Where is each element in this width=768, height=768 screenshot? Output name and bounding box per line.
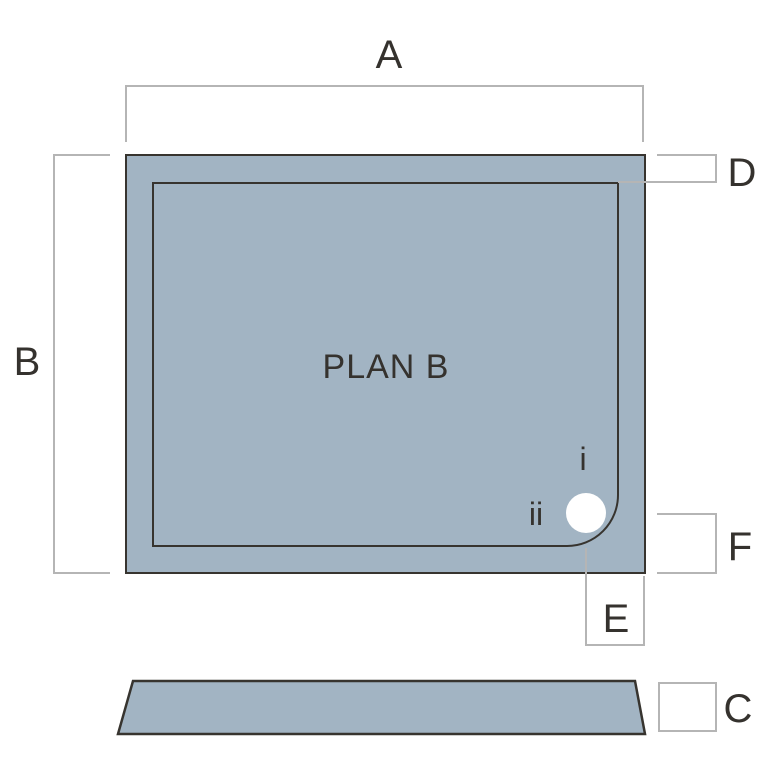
- dim-d-label: D: [717, 153, 767, 195]
- waste-marker-i: i: [558, 443, 608, 477]
- dim-d-bracket-inner-line: [618, 181, 717, 183]
- tray-side-profile: [100, 670, 660, 745]
- dim-e-label: E: [591, 599, 641, 641]
- dim-b-bracket: [53, 154, 110, 574]
- shower-tray-dimension-diagram: A B PLAN B i ii D F E C: [0, 0, 768, 768]
- plan-title: PLAN B: [266, 350, 506, 386]
- waste-outlet-circle: [566, 493, 606, 533]
- dim-a-bracket: [125, 85, 644, 142]
- waste-marker-ii: ii: [511, 498, 561, 532]
- tray-side-profile-shape: [118, 681, 645, 734]
- dim-a-label: A: [364, 35, 414, 77]
- dim-c-label: C: [713, 689, 763, 731]
- dim-f-bracket: [657, 513, 717, 574]
- dim-b-label: B: [2, 342, 52, 384]
- dim-f-label: F: [715, 527, 765, 569]
- dim-c-bracket: [658, 682, 717, 732]
- dim-d-bracket: [657, 154, 717, 183]
